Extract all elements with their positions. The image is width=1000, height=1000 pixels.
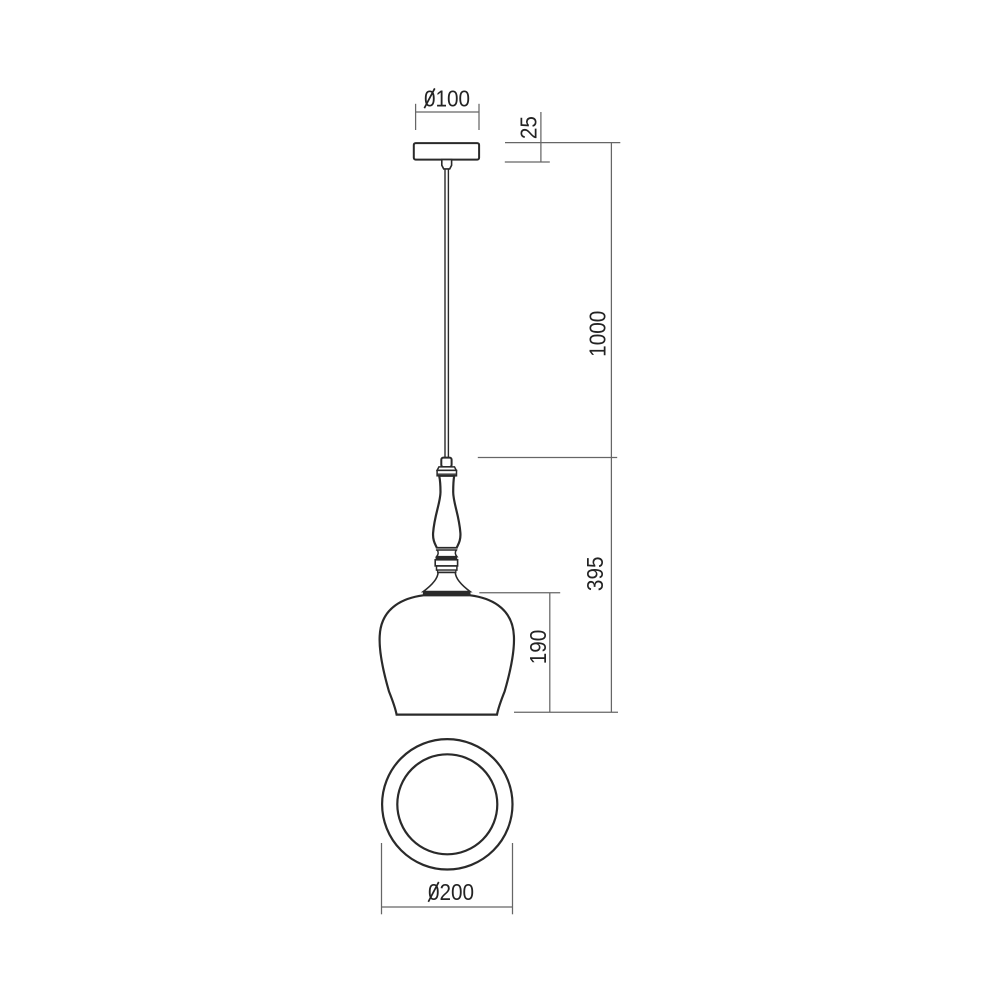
svg-text:25: 25 <box>515 116 541 139</box>
svg-text:190: 190 <box>525 630 551 665</box>
svg-text:1000: 1000 <box>584 311 610 357</box>
svg-text:0100: 0100 <box>424 85 470 111</box>
svg-text:395: 395 <box>582 557 608 592</box>
svg-text:0200: 0200 <box>428 879 474 905</box>
